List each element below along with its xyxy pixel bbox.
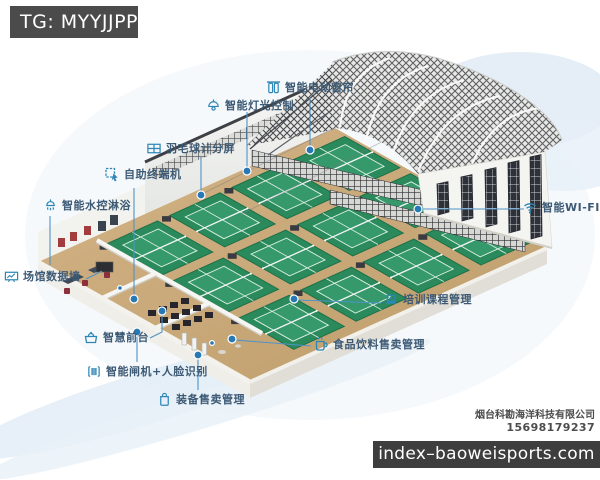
data-wall-screen <box>96 262 113 272</box>
vendor-company: 烟台科勘海洋科技有限公司 <box>475 410 595 422</box>
website-watermark: index–baoweisports.com <box>373 441 600 468</box>
vendor-phone: 15698179237 <box>475 422 595 435</box>
vendor-info: 烟台科勘海洋科技有限公司 15698179237 <box>475 410 595 434</box>
telegram-watermark: TG: MYYJJPP <box>10 6 138 38</box>
building-illustration <box>0 0 600 480</box>
promo-infographic: 智能电动窗帘 智能灯光控制 羽毛球计分屏 自助终端机 智能水控淋浴 <box>0 0 600 480</box>
